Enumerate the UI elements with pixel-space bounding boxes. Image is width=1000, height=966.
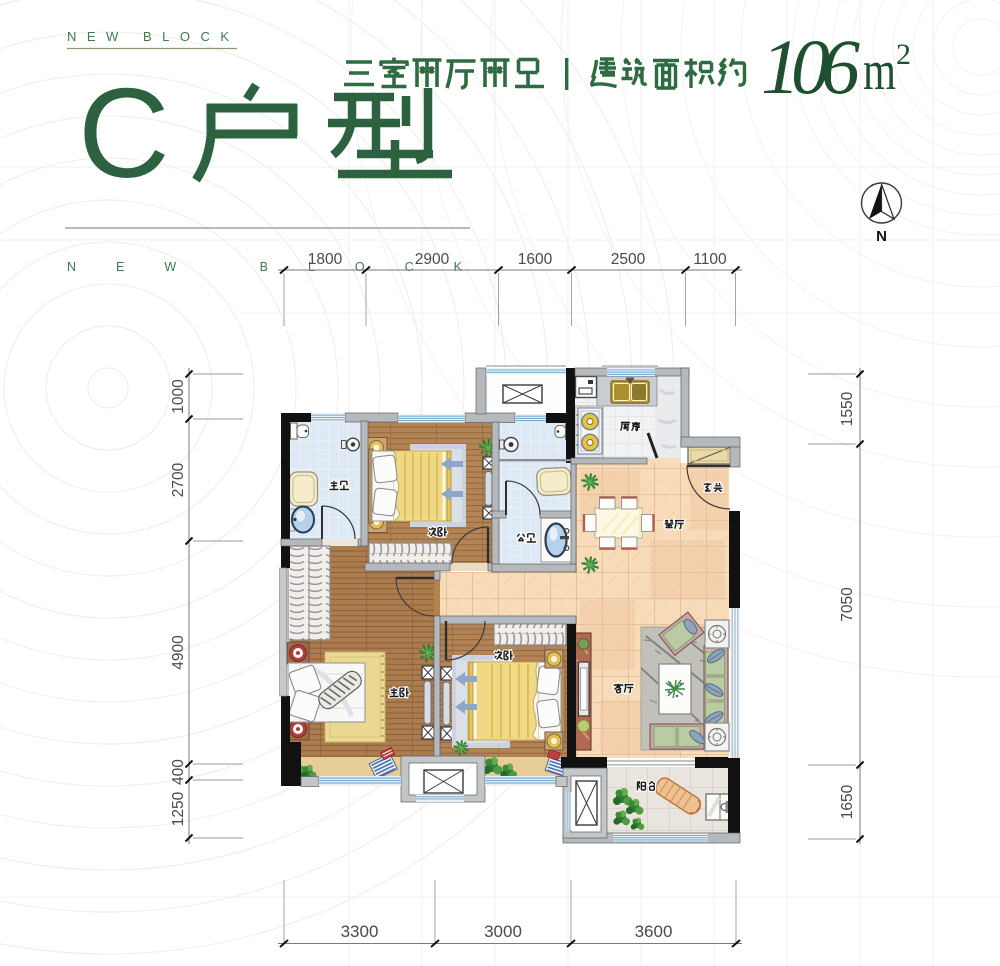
svg-text:106: 106 [761, 23, 860, 110]
svg-text:400: 400 [170, 759, 187, 785]
svg-text:2900: 2900 [415, 251, 450, 268]
svg-text:3300: 3300 [341, 922, 379, 941]
svg-text:1000: 1000 [170, 379, 187, 414]
svg-text:1800: 1800 [308, 251, 343, 268]
svg-text:C: C [78, 62, 170, 204]
svg-text:NEW BLOCK: NEW BLOCK [67, 29, 240, 44]
svg-text:2700: 2700 [170, 462, 187, 497]
svg-text:1100: 1100 [693, 251, 727, 268]
svg-text:m: m [863, 40, 896, 102]
svg-text:7050: 7050 [839, 587, 856, 622]
svg-text:4900: 4900 [170, 635, 187, 670]
svg-text:1600: 1600 [518, 251, 553, 268]
svg-text:2500: 2500 [611, 251, 646, 268]
svg-text:3600: 3600 [635, 922, 673, 941]
svg-text:2: 2 [896, 38, 911, 71]
svg-text:1550: 1550 [839, 391, 856, 426]
svg-text:3000: 3000 [484, 922, 522, 941]
svg-text:1250: 1250 [170, 791, 187, 826]
svg-text:1650: 1650 [839, 784, 856, 819]
svg-text:N: N [876, 228, 887, 245]
